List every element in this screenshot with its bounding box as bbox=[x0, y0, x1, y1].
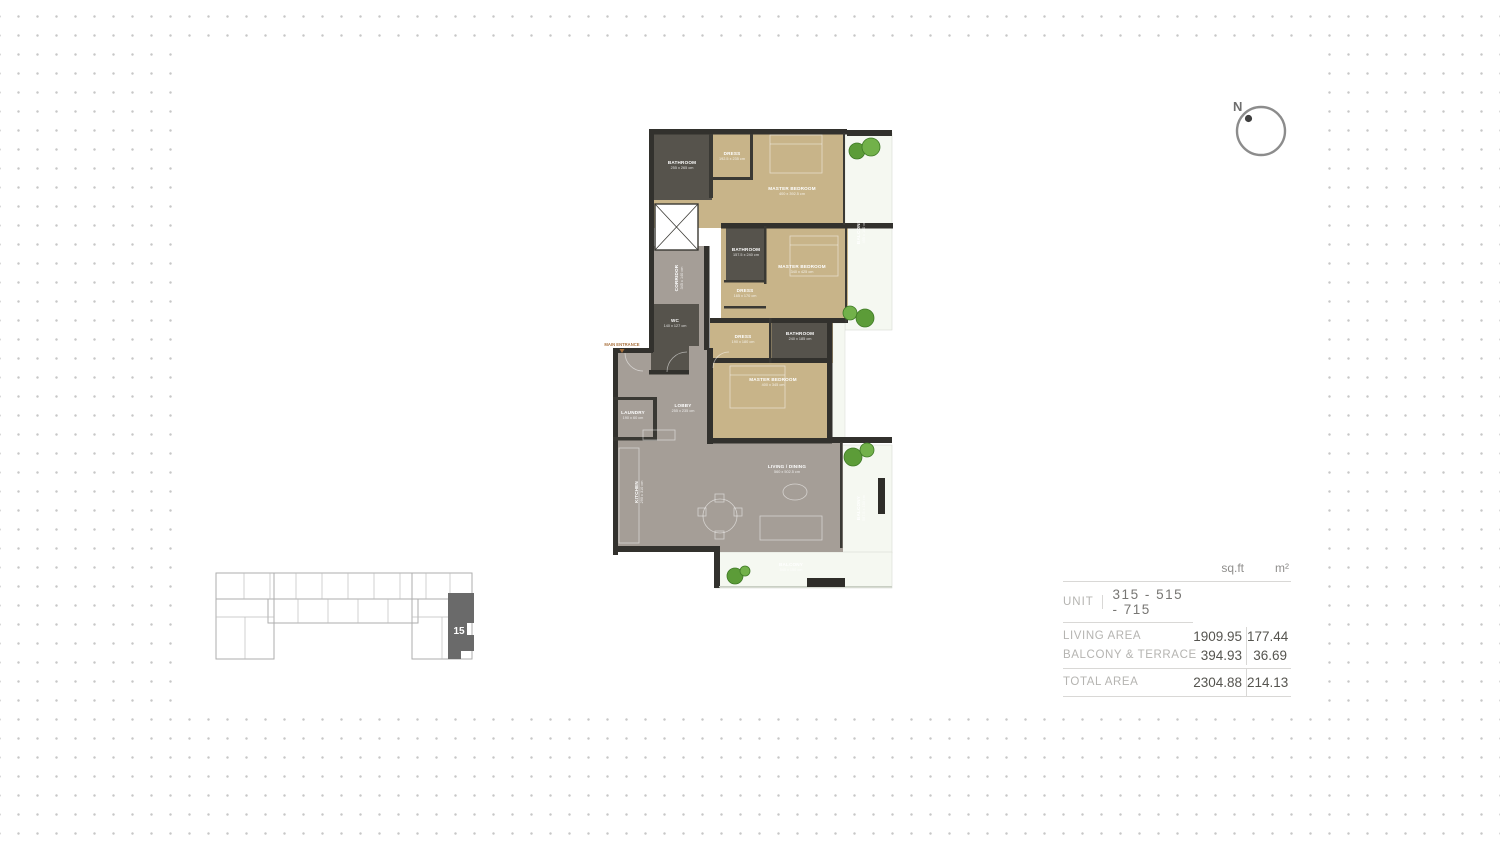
label-balcony-bottom: BALCONY bbox=[779, 562, 803, 567]
balcony-terrace-label: BALCONY & TERRACE bbox=[1063, 646, 1193, 665]
svg-text:560 x 502.5 cm: 560 x 502.5 cm bbox=[774, 470, 800, 474]
svg-text:345 x 140 cm: 345 x 140 cm bbox=[680, 267, 684, 290]
svg-text:240 x 185 cm: 240 x 185 cm bbox=[789, 337, 812, 341]
unit-value: 315 - 515 - 715 bbox=[1113, 587, 1193, 617]
unit-15-label: 15 bbox=[453, 626, 465, 637]
label-laundry: LAUNDRY bbox=[621, 410, 645, 415]
svg-text:BALCONY: BALCONY bbox=[856, 496, 861, 520]
unit-divider bbox=[1102, 595, 1103, 609]
total-area-sqm: 214.13 bbox=[1246, 668, 1291, 697]
compass-circle bbox=[1237, 107, 1285, 155]
svg-text:190 x 180 cm: 190 x 180 cm bbox=[732, 340, 755, 344]
main-entrance-label: MAIN ENTRANCE bbox=[604, 342, 639, 347]
key-plan: 15 bbox=[212, 565, 476, 669]
col-header-sqm: m² bbox=[1246, 559, 1291, 581]
label-dress-3: DRESS bbox=[735, 334, 752, 339]
compass-north-dot bbox=[1245, 115, 1252, 122]
total-area-label: TOTAL AREA bbox=[1063, 668, 1193, 697]
label-bathroom-2: BATHROOM bbox=[732, 247, 760, 252]
svg-text:192.5 x 235 cm: 192.5 x 235 cm bbox=[719, 157, 745, 161]
svg-text:BALCONY: BALCONY bbox=[856, 220, 861, 244]
svg-text:400 x 392.5 cm: 400 x 392.5 cm bbox=[779, 192, 805, 196]
label-dress-1: DRESS bbox=[724, 151, 741, 156]
unit-row: UNIT 315 - 515 - 715 bbox=[1063, 581, 1193, 623]
label-bathroom-1: BATHROOM bbox=[668, 160, 696, 165]
svg-text:587.5 x 150 cm: 587.5 x 150 cm bbox=[862, 495, 866, 521]
svg-text:190 x 60 cm: 190 x 60 cm bbox=[623, 416, 644, 420]
living-area-sqft: 1909.95 bbox=[1193, 627, 1246, 646]
balcony-terrace-sqm: 36.69 bbox=[1246, 646, 1291, 665]
room-master-bedroom-3 bbox=[710, 358, 832, 442]
balcony-terrace-sqft: 394.93 bbox=[1193, 646, 1246, 665]
svg-text:140 x 127 cm: 140 x 127 cm bbox=[664, 324, 687, 328]
room-living-dining bbox=[613, 440, 843, 552]
content-area: N bbox=[181, 51, 1322, 711]
svg-text:290 x 310 cm: 290 x 310 cm bbox=[640, 481, 644, 504]
label-master-bedroom-2: MASTER BEDROOM bbox=[778, 264, 825, 269]
area-table: sq.ft m² UNIT 315 - 515 - 715 LIVING ARE… bbox=[1063, 559, 1291, 697]
svg-text:KITCHEN: KITCHEN bbox=[634, 481, 639, 503]
svg-text:340 x 425 cm: 340 x 425 cm bbox=[791, 270, 814, 274]
svg-text:255 x 265 cm: 255 x 265 cm bbox=[671, 166, 694, 170]
total-area-sqft: 2304.88 bbox=[1193, 668, 1246, 697]
svg-text:157.5 x 240 cm: 157.5 x 240 cm bbox=[733, 253, 759, 257]
label-wc: WC bbox=[671, 318, 680, 323]
col-header-sqft: sq.ft bbox=[1193, 559, 1246, 581]
svg-text:400 x 345 cm: 400 x 345 cm bbox=[762, 383, 785, 387]
page-background: N bbox=[0, 0, 1500, 842]
living-area-label: LIVING AREA bbox=[1063, 627, 1193, 646]
floor-plan: BATHROOM 255 x 265 cm DRESS 192.5 x 235 … bbox=[595, 120, 895, 590]
label-bathroom-3: BATHROOM bbox=[786, 331, 814, 336]
compass: N bbox=[1221, 92, 1291, 162]
label-living-dining: LIVING / DINING bbox=[768, 464, 806, 469]
label-master-bedroom-3: MASTER BEDROOM bbox=[749, 377, 796, 382]
label-lobby: LOBBY bbox=[674, 403, 691, 408]
label-dress-2: DRESS bbox=[737, 288, 754, 293]
svg-text:255 x 235 cm: 255 x 235 cm bbox=[672, 409, 695, 413]
living-area-sqm: 177.44 bbox=[1246, 627, 1291, 646]
svg-text:495 x 180 cm: 495 x 180 cm bbox=[862, 221, 866, 244]
compass-north-label: N bbox=[1233, 99, 1242, 114]
room-balcony-right bbox=[845, 133, 892, 330]
svg-text:CORRIDOR: CORRIDOR bbox=[674, 264, 679, 291]
svg-text:545 x 150 cm: 545 x 150 cm bbox=[780, 568, 803, 572]
svg-text:165 x 170 cm: 165 x 170 cm bbox=[734, 294, 757, 298]
balcony-planter bbox=[807, 578, 845, 587]
elevator-shaft bbox=[655, 204, 698, 250]
terrace-strip bbox=[832, 323, 845, 439]
entrance-vestibule bbox=[651, 342, 689, 374]
label-master-bedroom-1: MASTER BEDROOM bbox=[768, 186, 815, 191]
unit-label: UNIT bbox=[1063, 596, 1102, 608]
balcony-bench bbox=[878, 478, 885, 514]
